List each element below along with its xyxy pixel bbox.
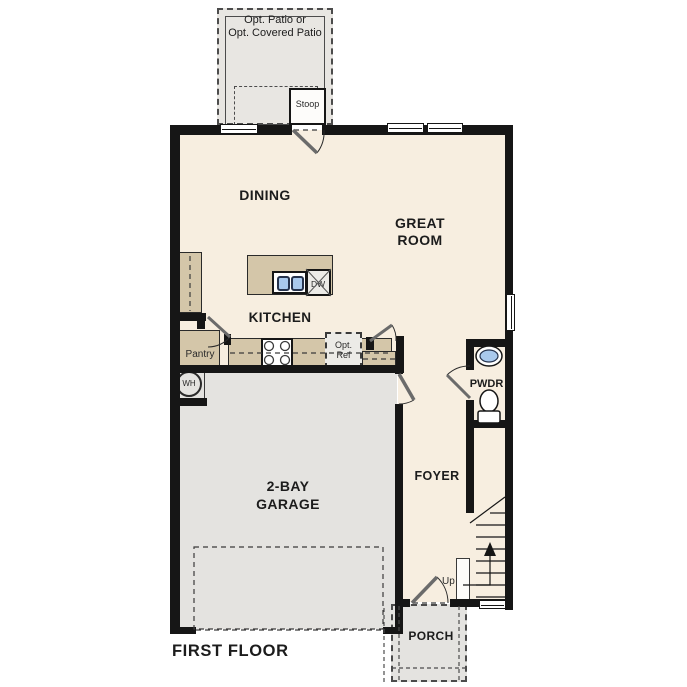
left-wall-cabinet [178,252,202,313]
patio-label-line1: Opt. Patio or [217,14,333,27]
patio-label: Opt. Patio or Opt. Covered Patio [217,14,333,40]
garage-label-line1: 2-BAY [243,477,333,495]
opt-ref-line2: Ref [327,350,360,360]
dishwasher-label: DW [311,279,325,289]
wall-foyer-bottom-left [395,599,410,607]
pantry-label: Pantry [180,349,220,360]
optional-refrigerator: Opt. Ref [325,332,362,369]
wall-counter-jamb [224,334,231,345]
wall-kitchen-garage [170,365,403,373]
dining-label: DINING [225,187,305,204]
wall-powder-bottom [466,420,513,428]
wall-water-heater [170,398,207,406]
window-great-room-a [387,123,424,133]
window-great-room-b [427,123,463,133]
wall-kitchen-jamb [366,337,374,350]
stair-railing [456,558,470,600]
wall-right [505,125,513,610]
wall-pantry-nub [197,313,205,329]
floor-title: FIRST FLOOR [172,643,292,660]
garage-label-line2: GARAGE [243,495,333,513]
stoop-label: Stoop [289,99,326,109]
wall-garage-bottom-left [170,627,196,634]
wall-garage-bottom-right [383,627,403,634]
garage-label: 2-BAY GARAGE [243,477,333,513]
great-room-label: GREAT ROOM [380,215,460,249]
powder-room-label: PWDR [468,376,505,393]
window-front-wall [479,600,506,609]
island-sink [272,271,307,294]
stairs-up-label: Up [442,576,455,587]
patio-label-line2: Opt. Covered Patio [217,27,333,40]
opt-ref-line1: Opt. [327,340,360,350]
foyer-label: FOYER [413,468,461,485]
wall-stair-left [466,428,474,513]
wall-powder-left-a [466,339,474,370]
porch-label: PORCH [407,628,455,645]
window-right-wall [506,294,515,331]
stove [261,338,293,367]
sink-basin-right [291,276,304,291]
great-room-label-line1: GREAT [380,215,460,232]
window-dining-rear [220,124,258,134]
great-room-label-line2: ROOM [380,232,460,249]
kitchen-label: KITCHEN [240,309,320,326]
wall-garage-right-a [395,365,403,374]
water-heater-label: WH [182,379,195,388]
wall-left [170,125,180,634]
floor-plan-canvas: Opt. Patio or Opt. Covered Patio Stoop D… [0,0,687,687]
sink-basin-left [277,276,290,291]
